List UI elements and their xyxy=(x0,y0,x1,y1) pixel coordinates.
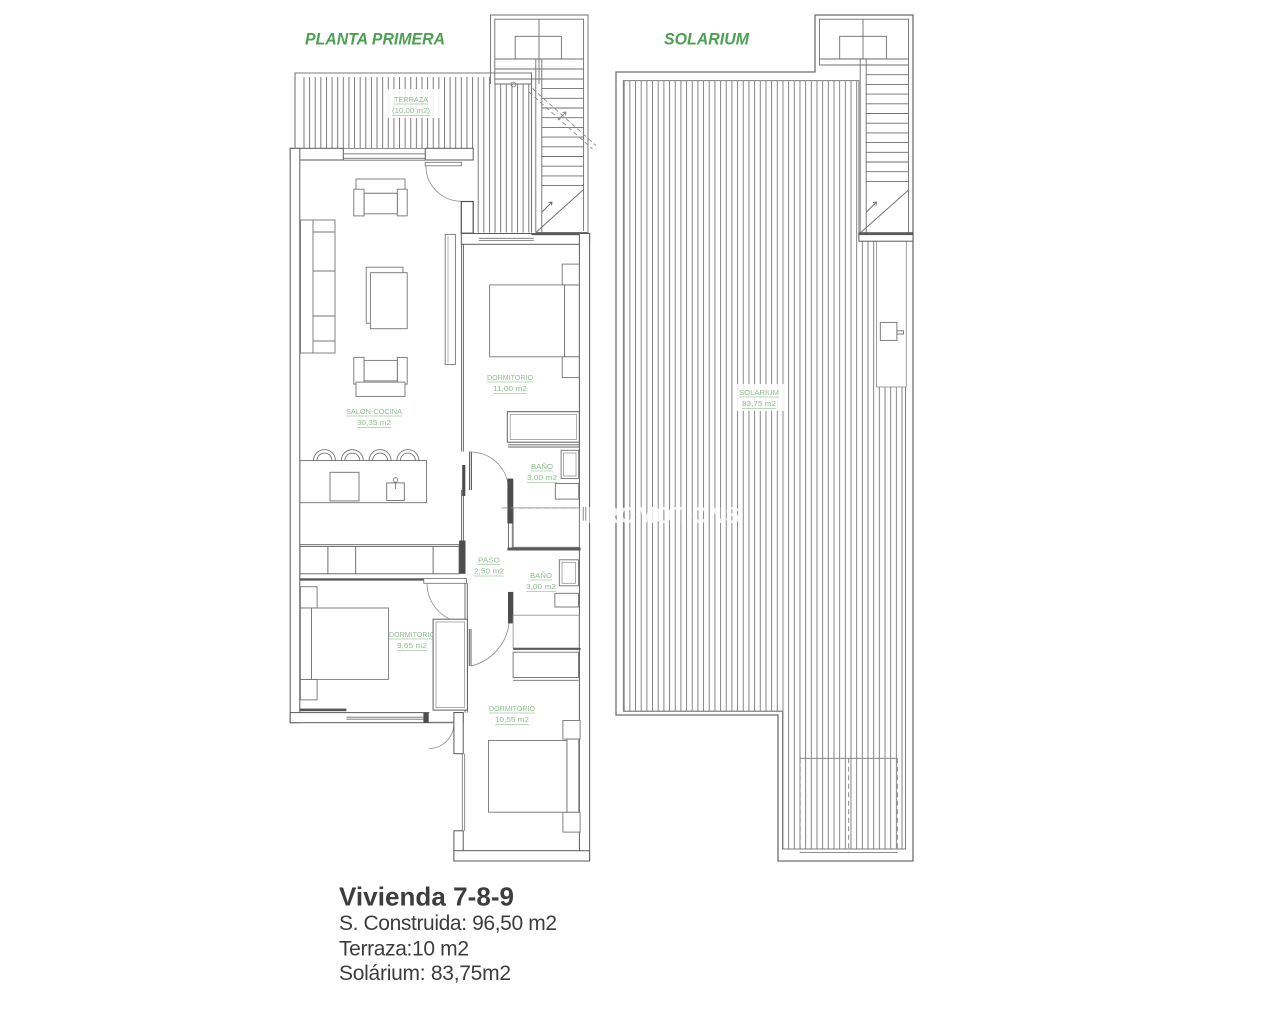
svg-text:(10,00 m2): (10,00 m2) xyxy=(392,108,430,115)
svg-text:BAÑO: BAÑO xyxy=(530,571,553,580)
svg-text:3,00 m2: 3,00 m2 xyxy=(526,584,556,591)
svg-text:PASO: PASO xyxy=(478,558,501,565)
svg-text:PLANTA PRIMERA: PLANTA PRIMERA xyxy=(305,31,445,49)
svg-text:83,75 m2: 83,75 m2 xyxy=(742,401,776,408)
svg-text:DORMITORIO: DORMITORIO xyxy=(389,632,436,639)
svg-text:BAÑO: BAÑO xyxy=(531,462,554,471)
svg-text:Terraza:10 m2: Terraza:10 m2 xyxy=(339,937,469,960)
svg-text:SOLARIUM: SOLARIUM xyxy=(739,390,779,397)
svg-text:3,00 m2: 3,00 m2 xyxy=(527,475,557,482)
svg-text:11,00 m2: 11,00 m2 xyxy=(493,386,527,393)
svg-text:TERRAZA: TERRAZA xyxy=(394,97,428,104)
svg-text:S. Construida: 96,50 m2: S. Construida: 96,50 m2 xyxy=(339,912,557,935)
svg-text:Solárium: 83,75m2: Solárium: 83,75m2 xyxy=(339,962,511,985)
svg-text:Vivienda 7-8-9: Vivienda 7-8-9 xyxy=(339,881,514,911)
svg-text:10,55 m2: 10,55 m2 xyxy=(495,717,529,724)
svg-text:9,65 m2: 9,65 m2 xyxy=(397,643,427,650)
svg-text:SALON-COCINA: SALON-COCINA xyxy=(346,409,402,416)
svg-text:SOLARIUM: SOLARIUM xyxy=(664,31,750,49)
svg-text:2,50 m2: 2,50 m2 xyxy=(474,569,504,576)
svg-text:PROMOTIONS: PROMOTIONS xyxy=(588,502,740,528)
svg-text:DORMITORIO: DORMITORIO xyxy=(487,375,534,382)
svg-text:30,35 m2: 30,35 m2 xyxy=(357,420,391,427)
svg-text:DORMITORIO: DORMITORIO xyxy=(489,706,536,713)
